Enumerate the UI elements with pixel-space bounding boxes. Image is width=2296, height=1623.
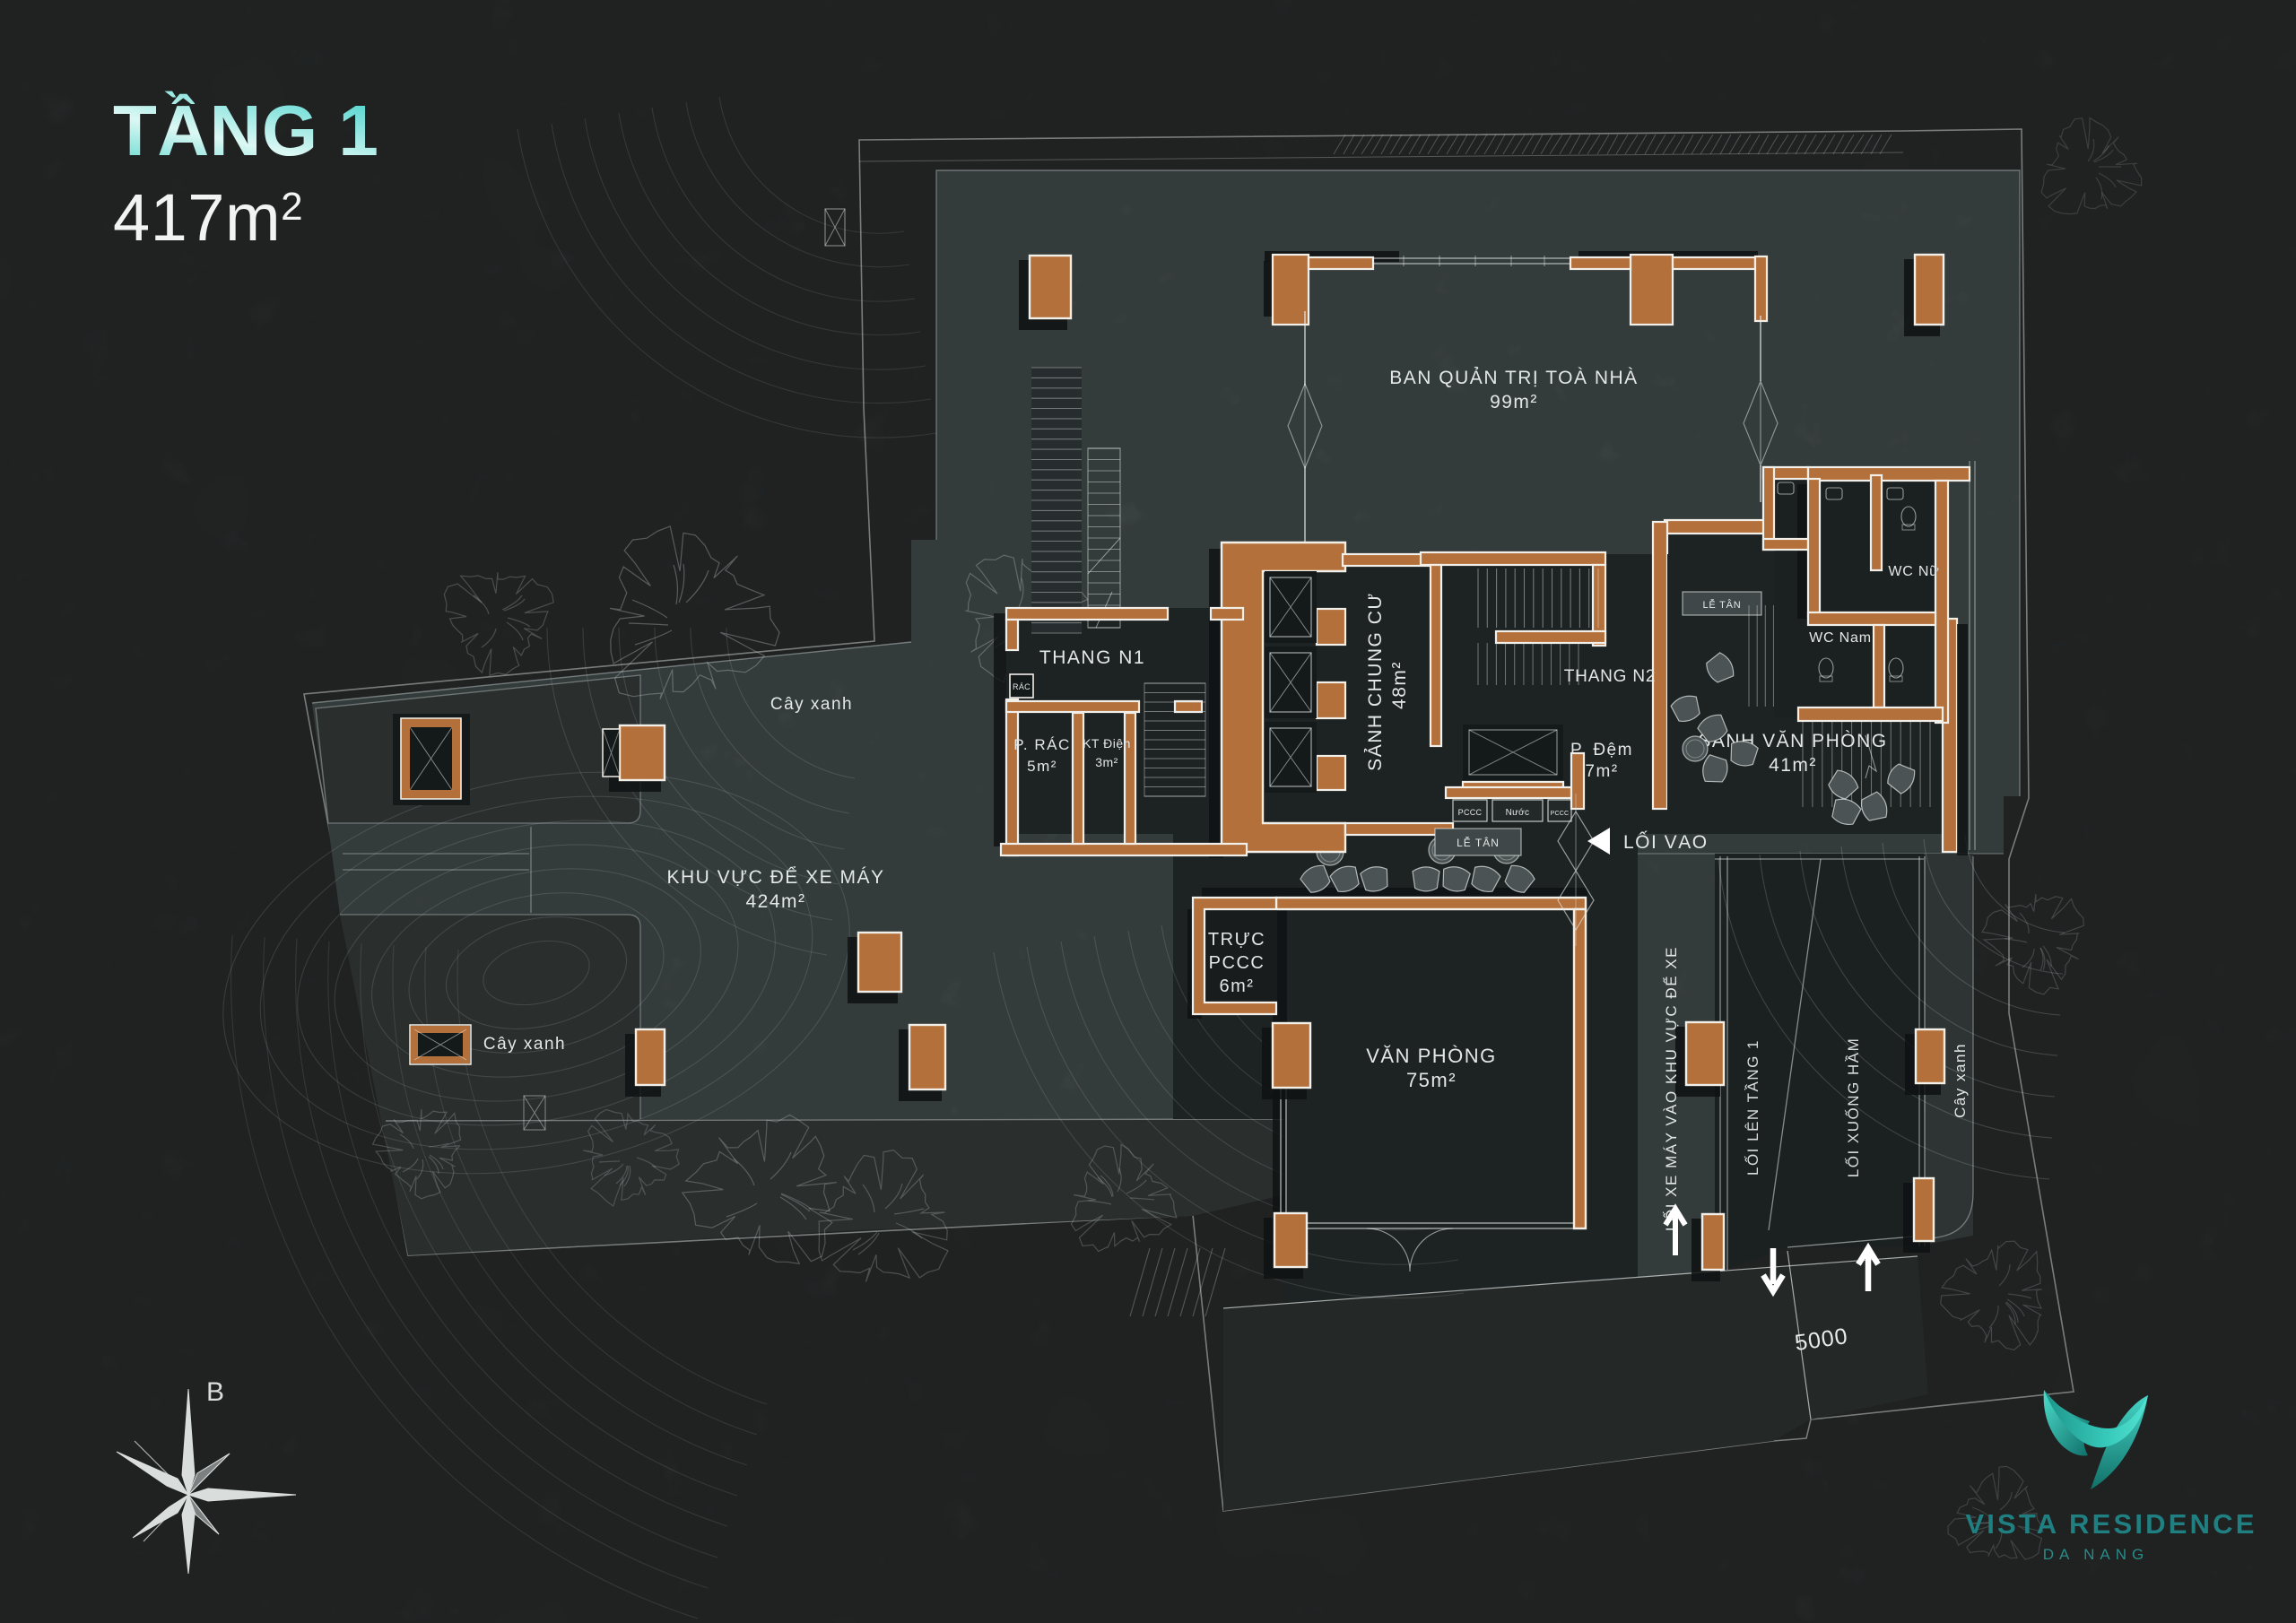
svg-text:LỐI XUỐNG HẦM: LỐI XUỐNG HẦM xyxy=(1844,1037,1862,1177)
svg-text:BAN QUẢN TRỊ TOÀ NHÀ: BAN QUẢN TRỊ TOÀ NHÀ xyxy=(1389,368,1638,388)
svg-text:B: B xyxy=(206,1377,224,1407)
svg-text:PCCC: PCCC xyxy=(1209,953,1265,973)
svg-text:48m²: 48m² xyxy=(1389,661,1410,709)
svg-text:SẢNH VĂN PHÒNG: SẢNH VĂN PHÒNG xyxy=(1698,731,1887,751)
svg-text:DA NANG: DA NANG xyxy=(2043,1546,2150,1563)
svg-text:WC Nam: WC Nam xyxy=(1809,630,1872,646)
svg-text:417m2: 417m2 xyxy=(113,180,303,255)
svg-text:LỄ TÂN: LỄ TÂN xyxy=(1457,836,1500,849)
svg-text:LỐI VÀO: LỐI VÀO xyxy=(1623,831,1709,853)
svg-text:KT Điện: KT Điện xyxy=(1083,736,1131,751)
svg-text:WC Nữ: WC Nữ xyxy=(1888,564,1939,579)
svg-text:LỐI XE MÁY VÀO KHU VỰC ĐỂ XE: LỐI XE MÁY VÀO KHU VỰC ĐỂ XE xyxy=(1662,946,1680,1231)
svg-text:PCCC: PCCC xyxy=(1551,811,1570,817)
svg-text:41m²: 41m² xyxy=(1769,755,1817,776)
svg-text:TẦNG 1: TẦNG 1 xyxy=(113,91,378,170)
svg-text:99m²: 99m² xyxy=(1490,392,1538,412)
svg-text:75m²: 75m² xyxy=(1406,1069,1457,1091)
svg-text:THANG N2: THANG N2 xyxy=(1564,667,1656,686)
svg-text:LỄ TÂN: LỄ TÂN xyxy=(1702,599,1741,611)
svg-text:KHU VỰC ĐỂ XE MÁY: KHU VỰC ĐỂ XE MÁY xyxy=(667,867,885,888)
svg-text:P. RÁC: P. RÁC xyxy=(1013,736,1071,753)
svg-text:SẢNH CHUNG CƯ: SẢNH CHUNG CƯ xyxy=(1365,592,1386,771)
svg-text:VĂN PHÒNG: VĂN PHÒNG xyxy=(1366,1045,1497,1067)
svg-text:THANG N1: THANG N1 xyxy=(1039,647,1145,668)
svg-text:TRỰC: TRỰC xyxy=(1208,930,1265,950)
svg-text:3m²: 3m² xyxy=(1095,755,1118,769)
svg-text:LỐI LÊN TẦNG 1: LỐI LÊN TẦNG 1 xyxy=(1744,1039,1761,1176)
svg-text:424m²: 424m² xyxy=(745,891,805,912)
svg-text:PCCC: PCCC xyxy=(1458,808,1483,817)
svg-text:Nước: Nước xyxy=(1506,808,1530,818)
svg-text:5m²: 5m² xyxy=(1027,758,1057,775)
svg-text:7m²: 7m² xyxy=(1585,762,1618,781)
svg-text:Cây xanh: Cây xanh xyxy=(483,1035,566,1054)
svg-text:VISTA RESIDENCE: VISTA RESIDENCE xyxy=(1965,1508,2257,1540)
svg-text:6m²: 6m² xyxy=(1220,976,1255,996)
svg-text:RÁC: RÁC xyxy=(1013,682,1031,691)
svg-text:Cây xanh: Cây xanh xyxy=(1952,1043,1969,1118)
svg-text:Cây xanh: Cây xanh xyxy=(770,695,853,714)
